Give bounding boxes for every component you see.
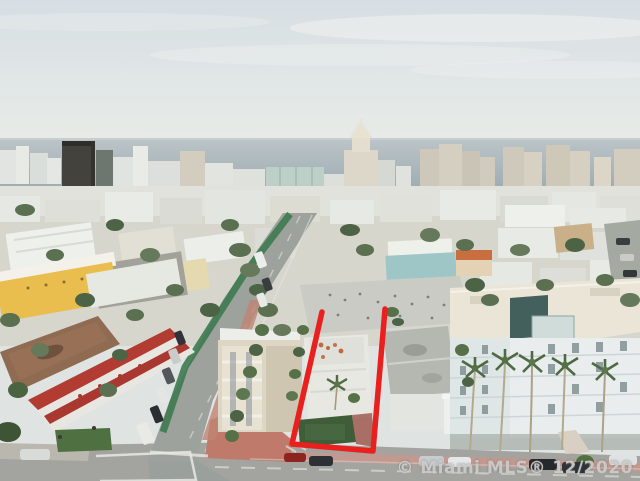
outlined-property-lot (298, 334, 374, 447)
scene-canvas (0, 0, 640, 481)
mls-watermark: © Miami MLS® 12/2020 (396, 458, 633, 478)
aerial-photo: © Miami MLS® 12/2020 (0, 0, 640, 481)
